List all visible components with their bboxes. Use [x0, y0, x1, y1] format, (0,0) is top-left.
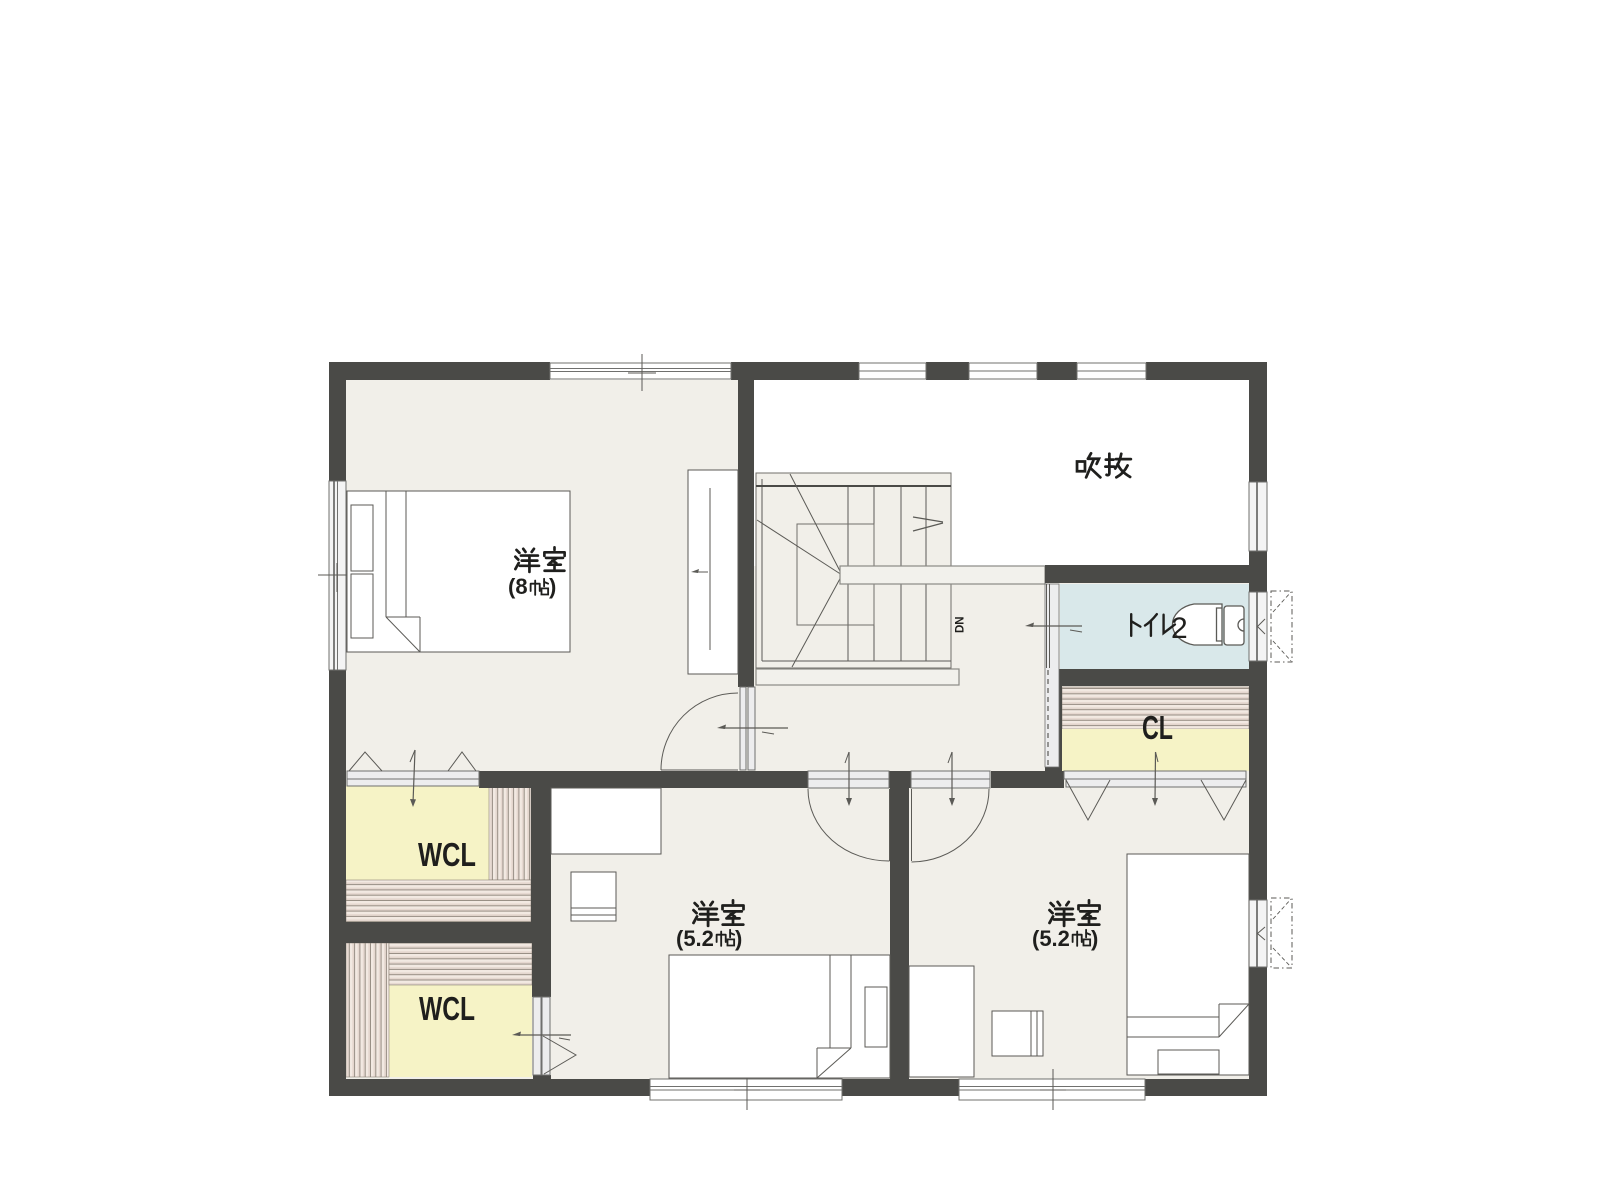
- svg-text:(8: (8: [508, 574, 528, 599]
- svg-text:DN: DN: [955, 616, 967, 633]
- svg-text:CL: CL: [1142, 709, 1173, 746]
- svg-text:(5.2: (5.2: [1032, 926, 1070, 951]
- svg-text:): ): [735, 926, 742, 951]
- svg-text:): ): [549, 574, 556, 599]
- svg-text:2: 2: [1171, 612, 1188, 645]
- svg-text:(5.2: (5.2: [676, 926, 714, 951]
- svg-text:WCL: WCL: [418, 836, 476, 873]
- svg-text:WCL: WCL: [419, 990, 475, 1027]
- svg-text:): ): [1091, 926, 1098, 951]
